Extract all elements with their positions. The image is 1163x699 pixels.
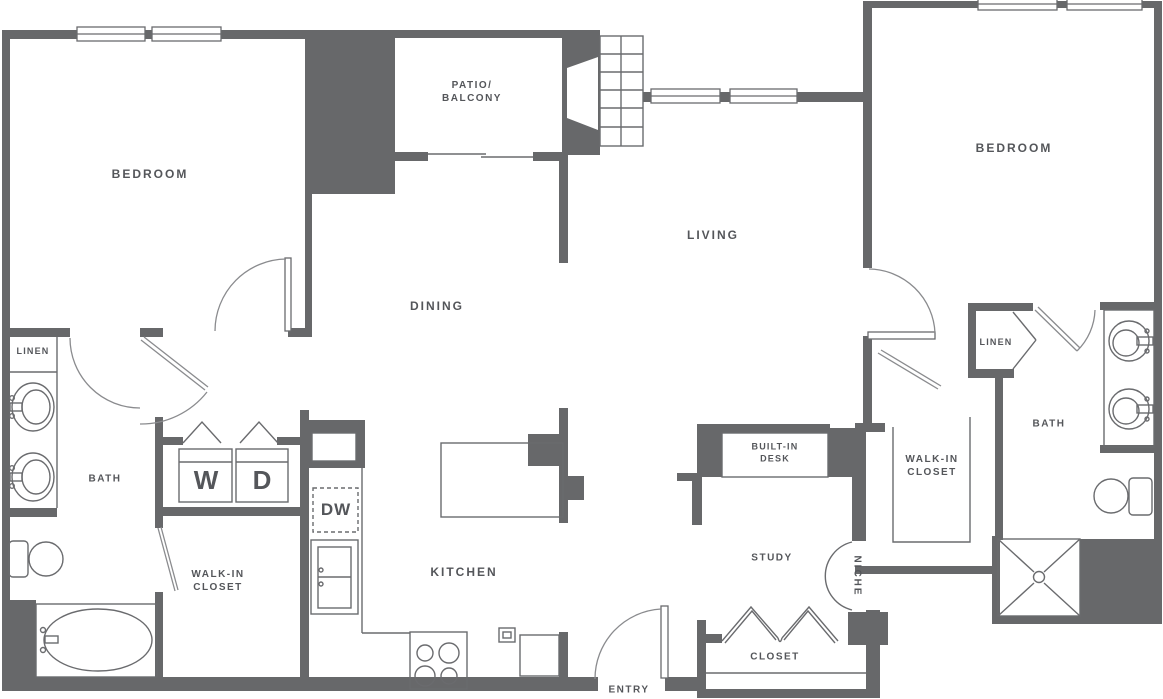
refrigerator-icon: [311, 540, 358, 614]
window-icon: [978, 0, 1057, 10]
door-leaf: [141, 340, 205, 390]
door-leaf: [161, 527, 178, 590]
sink-icon: [10, 453, 54, 501]
room-label-entry: ENTRY: [608, 684, 649, 697]
room-label-bedroom-left: BEDROOM: [112, 167, 189, 183]
bifold-door-icon: [722, 607, 838, 643]
fireplace-opening: [567, 57, 598, 130]
sliding-door-icon: [428, 154, 533, 157]
toilet-icon: [1094, 478, 1152, 515]
room-label-bath-left: BATH: [88, 473, 121, 486]
door-leaf: [868, 332, 935, 339]
sink-icon: [1109, 389, 1153, 429]
room-label-kitchen: KITCHEN: [430, 565, 497, 581]
sink-icon: [1109, 321, 1153, 361]
shower-icon: [998, 539, 1080, 616]
door-arc-icon: [70, 338, 140, 408]
room-label-patio: PATIO/ BALCONY: [442, 79, 502, 105]
door-leaf: [158, 528, 175, 591]
linen-door-icon: [1013, 312, 1036, 369]
door-arc-icon: [215, 259, 286, 331]
door-leaf: [878, 353, 938, 389]
niche-arc: [825, 542, 852, 610]
room-label-dining: DINING: [410, 299, 464, 315]
room-label-living: LIVING: [687, 228, 739, 244]
room-label-bath-right: BATH: [1032, 418, 1065, 431]
dishwasher-label: DW: [321, 499, 351, 521]
counter-edge: [362, 468, 410, 633]
door-leaf: [1038, 307, 1080, 348]
door-leaf: [285, 258, 291, 331]
room-label-walkin-left: WALK-IN CLOSET: [191, 568, 244, 594]
window-icon: [1067, 0, 1142, 10]
floor-plan: BEDROOM BEDROOM PATIO/ BALCONY LIVING DI…: [0, 0, 1163, 699]
washer-label: W: [194, 464, 219, 498]
room-label-walkin-right: WALK-IN CLOSET: [905, 453, 958, 479]
floor-plan-drawing: [0, 0, 1163, 699]
sink-icon: [10, 383, 54, 431]
door-leaf: [881, 350, 941, 386]
room-label-closet: CLOSET: [750, 651, 800, 664]
room-label-study: STUDY: [751, 552, 792, 565]
kitchen-sink-icon: [499, 628, 559, 676]
dryer-label: D: [253, 464, 272, 498]
toilet-icon: [9, 541, 63, 577]
room-label-niche: NICHE: [851, 555, 864, 596]
room-label-linen-right: LINEN: [980, 337, 1013, 349]
door-arc-icon: [1077, 310, 1095, 351]
door-arc-icon: [140, 392, 207, 424]
door-arc-icon: [869, 269, 935, 333]
walkin-right-shelf: [893, 417, 970, 542]
hearth-tile-grid-icon: [600, 36, 643, 146]
room-label-linen-left: LINEN: [17, 346, 50, 358]
door-leaf: [661, 606, 668, 678]
door-leaf: [1035, 310, 1077, 351]
bifold-door-icon: [183, 422, 278, 443]
room-label-bedroom-right: BEDROOM: [976, 141, 1053, 157]
kitchen-sink-top: [312, 433, 356, 461]
door-leaf: [144, 337, 208, 387]
bathtub-icon: [36, 604, 157, 677]
door-arc-icon: [595, 609, 661, 679]
room-label-built-in-desk: BUILT-IN DESK: [752, 441, 799, 464]
